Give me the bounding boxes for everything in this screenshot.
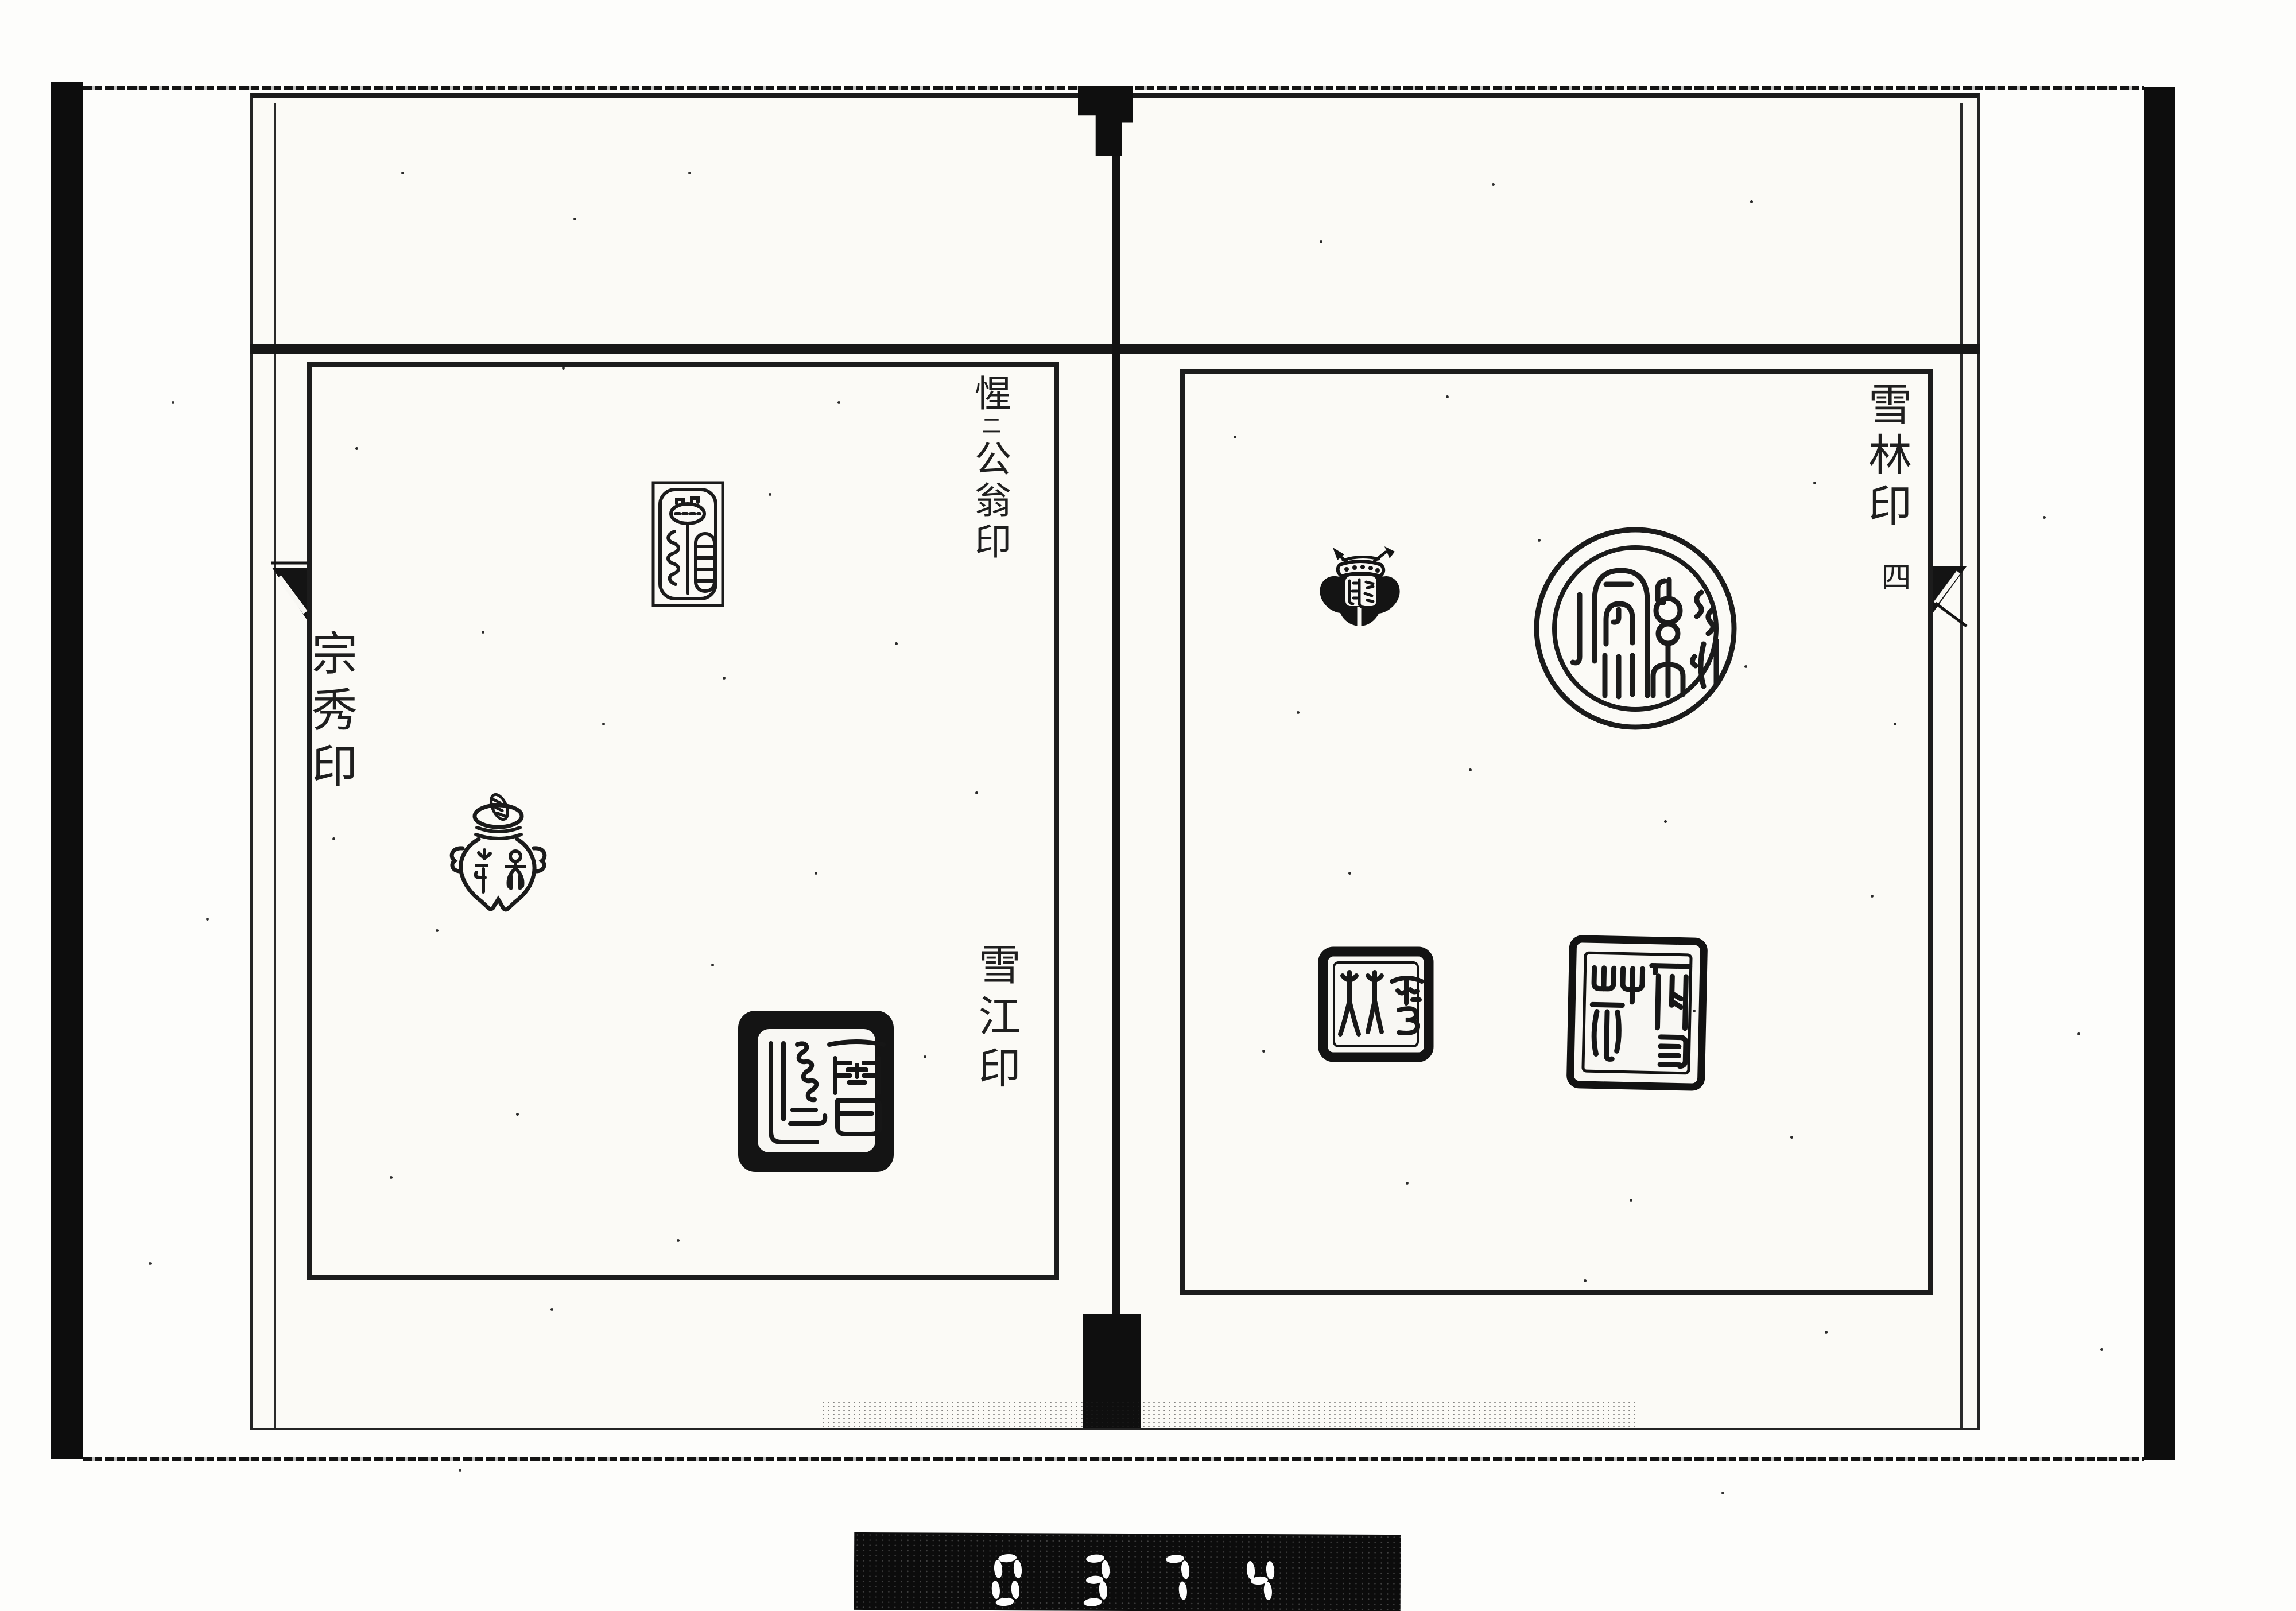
label-right-page-number: 四 (1878, 561, 1908, 591)
square-seal-small (1317, 946, 1434, 1063)
film-frame-left-bar (51, 82, 83, 1459)
counter-digit-7 (1155, 1554, 1194, 1607)
right-page-edge-line (1960, 103, 1963, 1428)
scanned-book-photo: 惺二公翁印 雪江印 宗秀印 (0, 0, 2296, 1611)
label-left-page-top-right: 惺二公翁印 (971, 374, 1008, 564)
label-left-page-bottom-right: 雪江印 (975, 942, 1017, 1097)
round-seal (1531, 523, 1739, 733)
book-gutter-fold-line (1112, 123, 1120, 1320)
label-char-main: 惺 (968, 374, 1011, 416)
left-fold-shadow (271, 560, 308, 623)
film-frame-bottom-line (83, 1457, 2144, 1461)
right-fold-shadow (1933, 566, 1968, 630)
counter-digit-0 (988, 1554, 1027, 1606)
square-seal-large (1565, 934, 1709, 1092)
label-chars-rest: 公翁印 (968, 440, 1011, 564)
film-frame-right-bar (2144, 87, 2175, 1460)
black-square-seal (736, 1009, 895, 1174)
film-counter-stamp (854, 1532, 1401, 1611)
iteration-mark: 二 (978, 416, 1001, 440)
label-left-page-left: 宗秀印 (308, 630, 354, 798)
counter-digit-3 (1076, 1554, 1115, 1607)
paper-speckles-margin (0, 0, 2, 2)
book-bottom-shadow (821, 1400, 1636, 1430)
label-right-page-top-right: 雪林印 (1864, 382, 1908, 533)
counter-digit-4 (1240, 1555, 1279, 1608)
right-page-frame (1180, 369, 1933, 1295)
butterfly-shaped-seal (1313, 538, 1408, 633)
rectangular-outline-seal (651, 481, 724, 607)
left-page-edge-line (274, 103, 276, 1428)
vase-shaped-seal (447, 792, 551, 919)
